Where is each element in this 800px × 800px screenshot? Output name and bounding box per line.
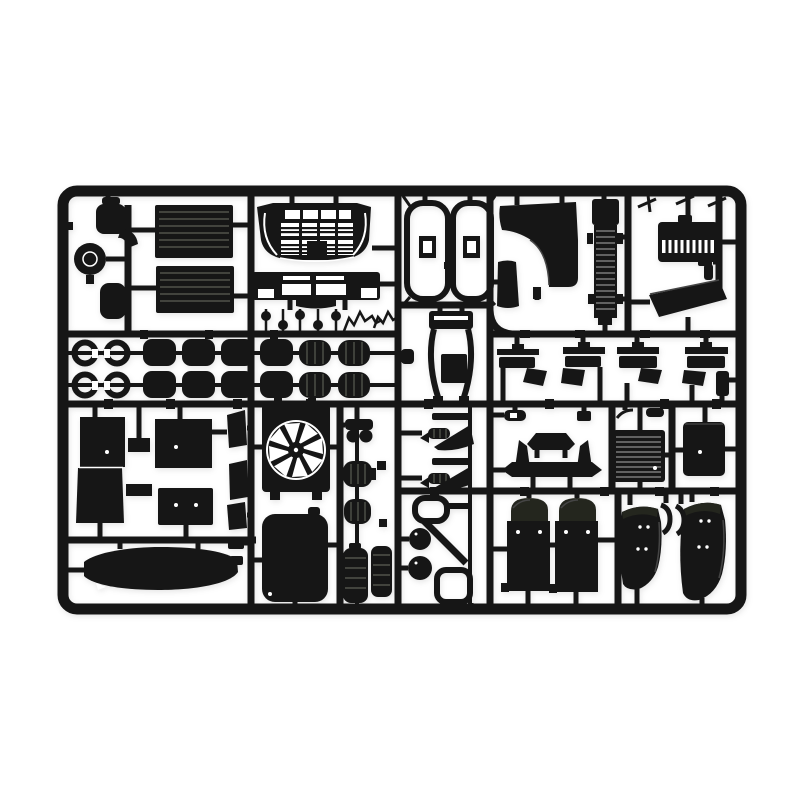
- front-bumper: [252, 272, 380, 309]
- side-deflector-upper: [155, 205, 233, 258]
- front-mudguard-1: [501, 498, 550, 592]
- side-slab-small: [716, 371, 729, 396]
- lamp-bracket-frame: [408, 498, 470, 602]
- fog-lamp-2: [408, 556, 432, 580]
- air-canister-upper: [96, 197, 126, 234]
- oil-cooler: [683, 422, 725, 476]
- door-panel-a: [80, 417, 125, 467]
- fan-shroud: [262, 398, 330, 500]
- front-mudguard-2: [549, 498, 598, 593]
- filler-knob: [74, 243, 106, 284]
- clamp-rings: [75, 343, 128, 396]
- sprue-photo: [0, 0, 800, 800]
- rear-fender-1: [620, 507, 662, 590]
- air-canister-lower: [100, 283, 126, 319]
- sun-visor: [84, 547, 238, 590]
- panel-link-2: [126, 484, 152, 496]
- radiator-ladder: [587, 199, 623, 325]
- ribbed-couplers: [299, 340, 370, 398]
- battery-box: [158, 488, 213, 525]
- side-deflector-lower: [156, 266, 234, 313]
- fender-liner-hook-2: [676, 506, 684, 534]
- stabilizer-bar: [502, 433, 602, 477]
- air-filter-1: [339, 461, 376, 487]
- step-bracket-3: [617, 342, 662, 384]
- seat-frame: [401, 311, 473, 405]
- chassis-wishbone-right: [453, 196, 495, 305]
- radiator-core: [613, 430, 665, 482]
- air-tank-2: [371, 546, 392, 597]
- cab-mount-bushings: [143, 339, 293, 398]
- air-filter-2: [344, 499, 371, 524]
- photo-canvas: [0, 0, 800, 800]
- small-nub-2: [379, 519, 387, 527]
- small-nub-1: [377, 461, 386, 470]
- fender-liner-hook-1: [661, 505, 670, 533]
- door-panel-b: [155, 419, 212, 468]
- leaf-spring-1: [420, 413, 474, 450]
- fuel-tank: [262, 507, 328, 602]
- truck-grille: [257, 203, 371, 261]
- pipe-elbow-right: [698, 257, 713, 280]
- blank-panel: [76, 468, 124, 524]
- fog-lamp-1: [409, 528, 431, 550]
- mirror-pins: [261, 309, 341, 332]
- side-slab: [497, 261, 519, 309]
- leaf-spring-2: [420, 458, 472, 489]
- air-tank-1: [343, 543, 368, 603]
- panel-link-1: [128, 438, 150, 452]
- chassis-wishbone-left: [403, 196, 448, 305]
- twig-bracket: [344, 312, 399, 331]
- engine-cover: [658, 215, 718, 262]
- wishbone-link: [444, 262, 456, 269]
- roof-deflector: [649, 280, 727, 317]
- rear-fender-2: [680, 503, 726, 601]
